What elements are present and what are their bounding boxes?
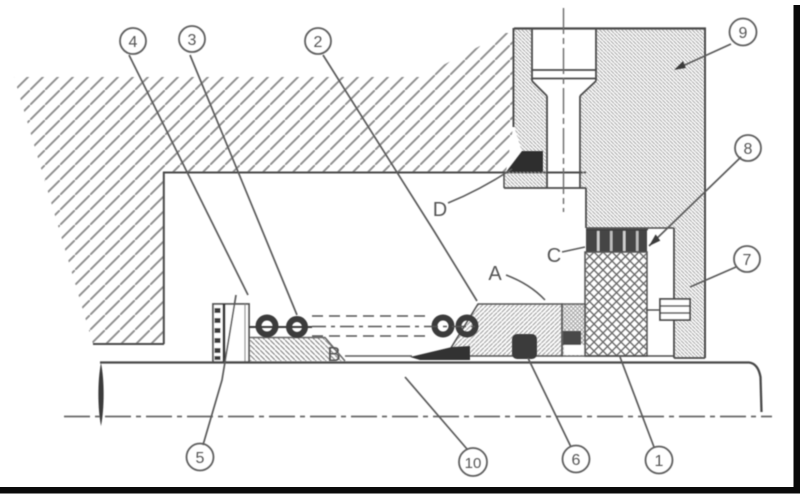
svg-text:3: 3 — [188, 32, 197, 49]
svg-text:7: 7 — [743, 252, 752, 269]
svg-text:D: D — [433, 199, 447, 221]
svg-text:1: 1 — [655, 453, 664, 470]
svg-text:6: 6 — [572, 452, 581, 469]
svg-text:5: 5 — [196, 450, 205, 467]
svg-text:C: C — [547, 245, 561, 267]
svg-text:B: B — [327, 344, 340, 366]
svg-text:4: 4 — [129, 34, 138, 51]
svg-text:8: 8 — [744, 141, 753, 158]
svg-text:10: 10 — [465, 455, 482, 472]
svg-text:9: 9 — [739, 25, 748, 42]
svg-text:2: 2 — [314, 34, 323, 51]
svg-text:A: A — [488, 263, 502, 285]
